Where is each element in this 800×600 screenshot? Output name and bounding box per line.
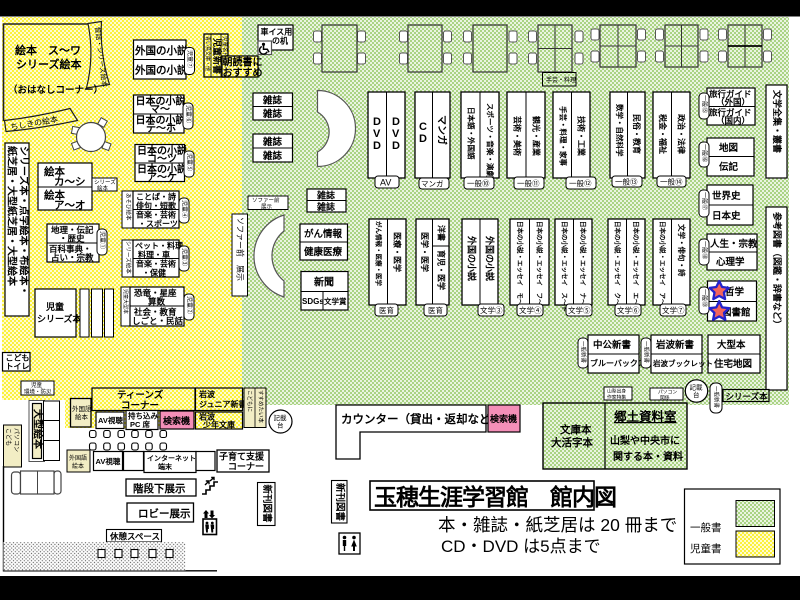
svg-text:住宅地図: 住宅地図 bbox=[714, 358, 752, 370]
svg-text:新刊図書: 新刊図書 bbox=[334, 483, 346, 522]
svg-text:こどもに: こどもに bbox=[246, 390, 254, 412]
svg-text:外国語: 外国語 bbox=[72, 404, 92, 413]
svg-text:数学・自然科学: 数学・自然科学 bbox=[615, 104, 625, 157]
svg-text:日本の小説・エッセイ エ～キ: 日本の小説・エッセイ エ～キ bbox=[632, 221, 641, 312]
svg-text:一般⑮: 一般⑮ bbox=[700, 95, 708, 113]
svg-text:大型絵本: 大型絵本 bbox=[31, 409, 44, 450]
svg-text:PC 席: PC 席 bbox=[130, 419, 151, 429]
svg-text:日本の小説・エッセイ ク～シ: 日本の小説・エッセイ ク～シ bbox=[614, 221, 623, 313]
svg-text:児童①: 児童① bbox=[98, 231, 106, 249]
svg-text:文学⑤: 文学⑤ bbox=[568, 305, 591, 315]
svg-text:シリーズ絵本: シリーズ絵本 bbox=[16, 57, 81, 71]
svg-text:一般⑲: 一般⑲ bbox=[700, 289, 708, 307]
svg-text:記載: 記載 bbox=[274, 413, 288, 422]
svg-text:世界史: 世界史 bbox=[712, 190, 741, 202]
svg-text:ペット・料理: ペット・料理 bbox=[135, 241, 183, 251]
svg-text:地図: 地図 bbox=[719, 142, 738, 154]
svg-text:シリーズ: シリーズ bbox=[94, 178, 116, 186]
svg-text:外国語: 外国語 bbox=[69, 454, 87, 462]
svg-text:車イス用: 車イス用 bbox=[261, 27, 293, 37]
svg-text:文学・俳句・詩: 文学・俳句・詩 bbox=[677, 224, 687, 277]
svg-text:D: D bbox=[392, 116, 400, 128]
svg-text:パソコン: パソコン bbox=[658, 390, 677, 396]
svg-text:音楽・芸術: 音楽・芸術 bbox=[136, 259, 176, 269]
svg-text:カウンター（貸出・返却など）: カウンター（貸出・返却など） bbox=[341, 412, 502, 426]
svg-text:絵本: 絵本 bbox=[75, 412, 89, 421]
svg-text:青い鳥文庫・他: 青い鳥文庫・他 bbox=[204, 36, 211, 71]
svg-text:こども: こども bbox=[4, 428, 12, 446]
svg-text:玉穂生涯学習館 館内図: 玉穂生涯学習館 館内図 bbox=[374, 484, 616, 510]
svg-text:AV視聴: AV視聴 bbox=[98, 415, 123, 425]
svg-text:民俗・教育: 民俗・教育 bbox=[632, 114, 642, 154]
svg-text:コ～ツ: コ～ツ bbox=[147, 153, 177, 165]
svg-text:児童②: 児童② bbox=[185, 296, 193, 314]
svg-text:ソファー前 展示: ソファー前 展示 bbox=[236, 217, 246, 281]
svg-text:外国の小説: 外国の小説 bbox=[467, 235, 478, 281]
svg-text:音楽・芸術: 音楽・芸術 bbox=[136, 210, 176, 220]
svg-text:雑誌: 雑誌 bbox=[316, 190, 335, 201]
svg-text:朝読書に: 朝読書に bbox=[223, 56, 263, 69]
svg-text:シリーズ本: シリーズ本 bbox=[37, 313, 83, 324]
svg-text:一般⑩: 一般⑩ bbox=[467, 178, 490, 188]
svg-text:がん情報・医療・医学: がん情報・医療・医学 bbox=[375, 221, 384, 287]
svg-text:医育: 医育 bbox=[379, 305, 394, 315]
svg-text:AV: AV bbox=[380, 178, 391, 188]
svg-text:観光・産業: 観光・産業 bbox=[531, 116, 541, 157]
svg-text:児童⑦: 児童⑦ bbox=[186, 50, 194, 68]
svg-text:人生・宗教: 人生・宗教 bbox=[710, 238, 758, 250]
svg-text:俳句・短歌: 俳句・短歌 bbox=[136, 201, 177, 211]
svg-text:（おはなしコーナー）: （おはなしコーナー） bbox=[8, 84, 103, 96]
svg-text:関する本・資料: 関する本・資料 bbox=[613, 450, 683, 463]
svg-text:岩波新書: 岩波新書 bbox=[655, 339, 695, 351]
svg-text:環境・防災: 環境・防災 bbox=[24, 388, 52, 396]
svg-text:ロビー展示: ロビー展示 bbox=[138, 507, 191, 520]
svg-text:岩波ブックレット: 岩波ブックレット bbox=[652, 358, 713, 368]
svg-text:紙芝居・大型紙芝居・大型絵本: 紙芝居・大型紙芝居・大型絵本 bbox=[5, 146, 18, 287]
svg-text:D: D bbox=[373, 116, 381, 128]
svg-text:少年文庫: 少年文庫 bbox=[202, 420, 235, 430]
svg-text:技術・工業: 技術・工業 bbox=[577, 116, 587, 157]
svg-text:文学⑥: 文学⑥ bbox=[617, 305, 640, 315]
svg-text:・スポーツ: ・スポーツ bbox=[138, 219, 178, 229]
svg-text:D: D bbox=[373, 140, 381, 152]
svg-text:医育: 医育 bbox=[428, 305, 443, 315]
svg-text:児童⑥: 児童⑥ bbox=[184, 105, 192, 123]
svg-text:の机: の机 bbox=[272, 36, 288, 46]
svg-text:作家特集: 作家特集 bbox=[607, 394, 626, 401]
svg-text:健康医療: 健康医療 bbox=[304, 246, 343, 258]
svg-text:一般⑬: 一般⑬ bbox=[615, 177, 638, 187]
svg-text:児童③: 児童③ bbox=[180, 248, 188, 266]
svg-text:インターネット: インターネット bbox=[147, 454, 196, 463]
svg-text:台: 台 bbox=[277, 421, 284, 430]
svg-text:SDGs: SDGs bbox=[302, 297, 324, 306]
svg-text:マンガ: マンガ bbox=[421, 179, 444, 189]
svg-text:シリーズ本・点字絵本・布絵本・: シリーズ本・点字絵本・布絵本・ bbox=[17, 146, 30, 296]
svg-text:ソファー前: ソファー前 bbox=[252, 196, 280, 204]
svg-text:児童名作: 児童名作 bbox=[221, 36, 229, 59]
svg-text:ジュニア新書: ジュニア新書 bbox=[199, 399, 246, 409]
svg-text:児童⑤: 児童⑤ bbox=[185, 153, 193, 171]
svg-text:マ～: マ～ bbox=[150, 105, 170, 116]
svg-text:・歴史: ・歴史 bbox=[59, 234, 85, 244]
svg-text:一般⑱: 一般⑱ bbox=[700, 241, 708, 259]
svg-text:文学③: 文学③ bbox=[480, 305, 503, 315]
svg-text:絵本: 絵本 bbox=[97, 184, 109, 192]
svg-text:C: C bbox=[419, 121, 427, 133]
svg-text:がん情報: がん情報 bbox=[304, 228, 343, 240]
svg-text:パソコン: パソコン bbox=[12, 428, 19, 452]
svg-text:児童大型本: 児童大型本 bbox=[122, 289, 129, 314]
svg-text:休憩スペース: 休憩スペース bbox=[109, 532, 160, 542]
svg-text:持ち込み: 持ち込み bbox=[128, 411, 158, 421]
svg-text:新刊図書: 新刊図書 bbox=[261, 485, 273, 524]
svg-text:関係: 関係 bbox=[660, 394, 670, 401]
svg-text:一般⑯: 一般⑯ bbox=[700, 144, 708, 162]
svg-text:手芸・料理・家事: 手芸・料理・家事 bbox=[558, 106, 568, 166]
svg-text:シリーズ本: シリーズ本 bbox=[726, 392, 769, 402]
svg-text:算数: 算数 bbox=[148, 297, 166, 307]
svg-text:ことば・詩: ことば・詩 bbox=[136, 192, 176, 202]
svg-text:日本の小説・エッセイ ス～ト: 日本の小説・エッセイ ス～ト bbox=[561, 221, 570, 312]
svg-text:絵本: 絵本 bbox=[72, 462, 84, 470]
svg-text:日本の小説・エッセイ モ～: 日本の小説・エッセイ モ～ bbox=[516, 221, 525, 306]
svg-text:トイレ: トイレ bbox=[6, 362, 30, 371]
svg-text:子育て支援: 子育て支援 bbox=[219, 451, 265, 462]
svg-text:外国の小説: 外国の小説 bbox=[134, 64, 188, 77]
svg-text:一般⑭: 一般⑭ bbox=[660, 177, 683, 187]
svg-text:雑誌: 雑誌 bbox=[316, 201, 335, 212]
svg-text:検索機: 検索機 bbox=[490, 413, 517, 424]
svg-text:D: D bbox=[392, 140, 400, 152]
svg-text:育児・医学: 育児・医学 bbox=[437, 250, 447, 290]
svg-text:コーナー: コーナー bbox=[228, 462, 264, 472]
svg-text:台: 台 bbox=[693, 390, 700, 399]
svg-text:郷土資料室: 郷土資料室 bbox=[614, 409, 677, 424]
svg-text:大型本: 大型本 bbox=[717, 339, 746, 351]
svg-text:日本の小説・エッセイ フ～メ: 日本の小説・エッセイ フ～メ bbox=[536, 221, 545, 312]
svg-text:日本の小説・エッセイ ア～ウ: 日本の小説・エッセイ ア～ウ bbox=[659, 221, 668, 312]
svg-text:岩波: 岩波 bbox=[198, 389, 216, 399]
svg-text:料理・車: 料理・車 bbox=[138, 250, 170, 260]
svg-text:階段下展示: 階段下展示 bbox=[133, 482, 186, 495]
svg-text:外国の小説: 外国の小説 bbox=[485, 235, 496, 281]
svg-text:V: V bbox=[392, 128, 400, 140]
svg-text:V: V bbox=[373, 128, 381, 140]
svg-text:新聞: 新聞 bbox=[314, 276, 334, 289]
svg-text:児童: 児童 bbox=[45, 301, 64, 312]
svg-text:CD・DVD は5点まで: CD・DVD は5点まで bbox=[441, 537, 601, 556]
svg-text:D: D bbox=[419, 133, 427, 145]
svg-text:（外国）: （外国） bbox=[716, 97, 750, 107]
svg-text:芸術・美術: 芸術・美術 bbox=[512, 116, 522, 156]
svg-text:（国内）: （国内） bbox=[716, 116, 750, 126]
svg-text:端末: 端末 bbox=[158, 462, 173, 471]
svg-text:ア～ケ: ア～ケ bbox=[147, 172, 177, 184]
svg-text:医学・医学: 医学・医学 bbox=[420, 232, 430, 272]
svg-text:手芸・料理: 手芸・料理 bbox=[546, 76, 576, 84]
svg-text:心理学: 心理学 bbox=[716, 256, 745, 268]
svg-text:展示: 展示 bbox=[261, 204, 273, 211]
svg-text:税金・福祉: 税金・福祉 bbox=[658, 114, 668, 154]
svg-text:シリーズ絵本: シリーズ絵本 bbox=[124, 241, 132, 274]
svg-text:雑誌: 雑誌 bbox=[262, 150, 283, 162]
svg-text:一般新書: 一般新書 bbox=[713, 386, 721, 409]
svg-text:記載: 記載 bbox=[690, 383, 704, 392]
svg-text:医療・医学: 医療・医学 bbox=[393, 232, 403, 272]
svg-text:日本語・外国語: 日本語・外国語 bbox=[467, 107, 477, 160]
svg-text:大活字本: 大活字本 bbox=[551, 436, 593, 449]
svg-text:占い・宗教: 占い・宗教 bbox=[51, 253, 94, 263]
svg-text:文学④: 文学④ bbox=[519, 305, 542, 315]
svg-text:政治・法律: 政治・法律 bbox=[677, 114, 687, 154]
svg-text:雑誌: 雑誌 bbox=[262, 136, 283, 148]
svg-text:日本史: 日本史 bbox=[712, 210, 741, 222]
svg-text:おすすめ: おすすめ bbox=[223, 67, 263, 79]
svg-text:ブルーバックス: ブルーバックス bbox=[590, 358, 646, 368]
svg-text:児童: 児童 bbox=[31, 381, 43, 389]
svg-text:児童書: 児童書 bbox=[690, 542, 722, 555]
svg-text:一般⑪: 一般⑪ bbox=[517, 178, 540, 188]
svg-text:一般⑰: 一般⑰ bbox=[700, 192, 708, 210]
svg-text:山梨出身: 山梨出身 bbox=[607, 388, 626, 395]
svg-text:あそび絵本: あそび絵本 bbox=[124, 193, 132, 221]
svg-text:しごと・民話: しごと・民話 bbox=[132, 316, 184, 326]
svg-text:ティーンズ: ティーンズ bbox=[117, 389, 164, 401]
svg-text:雑誌: 雑誌 bbox=[262, 108, 283, 120]
svg-text:中公新書: 中公新書 bbox=[593, 339, 632, 351]
svg-text:絵本 ス～ワ: 絵本 ス～ワ bbox=[15, 43, 81, 57]
svg-text:すすめたい本: すすめたい本 bbox=[257, 390, 265, 424]
svg-text:本・雑誌・紙芝居は 20 冊まで: 本・雑誌・紙芝居は 20 冊まで bbox=[438, 515, 677, 535]
svg-text:一般⑫: 一般⑫ bbox=[569, 178, 592, 188]
svg-text:コーナー: コーナー bbox=[121, 401, 159, 412]
svg-text:こども: こども bbox=[6, 353, 30, 363]
svg-text:外国の小説: 外国の小説 bbox=[134, 44, 188, 57]
svg-text:児童④: 児童④ bbox=[180, 200, 188, 218]
svg-text:山梨や中央市に: 山梨や中央市に bbox=[610, 434, 680, 447]
svg-text:ア～オ: ア～オ bbox=[54, 200, 86, 212]
svg-text:文庫本: 文庫本 bbox=[559, 423, 592, 436]
svg-text:AV視聴: AV視聴 bbox=[96, 456, 121, 466]
svg-text:一般新書: 一般新書 bbox=[643, 341, 651, 364]
svg-text:カ～シ: カ～シ bbox=[54, 176, 86, 188]
svg-text:参考図書（図鑑・辞書など）: 参考図書（図鑑・辞書など） bbox=[772, 212, 783, 329]
svg-text:洋書: 洋書 bbox=[437, 225, 447, 241]
svg-text:文学賞: 文学賞 bbox=[324, 296, 347, 306]
svg-text:伝記: 伝記 bbox=[719, 161, 739, 173]
svg-text:文学全集・叢書: 文学全集・叢書 bbox=[772, 89, 783, 153]
svg-text:テ～ホ: テ～ホ bbox=[146, 123, 176, 135]
svg-text:日本の小説・エッセイ ナ～ヒ: 日本の小説・エッセイ ナ～ヒ bbox=[579, 221, 588, 312]
svg-text:文学⑦: 文学⑦ bbox=[662, 305, 685, 315]
svg-text:・保健: ・保健 bbox=[142, 268, 166, 278]
svg-text:一般新書: 一般新書 bbox=[580, 341, 588, 364]
svg-text:検索機: 検索機 bbox=[163, 415, 190, 426]
svg-text:スポーツ・音楽・演劇: スポーツ・音楽・演劇 bbox=[486, 103, 496, 178]
svg-text:一般書: 一般書 bbox=[690, 521, 722, 534]
svg-text:マンガ: マンガ bbox=[436, 115, 449, 145]
svg-text:雑誌: 雑誌 bbox=[262, 95, 283, 107]
